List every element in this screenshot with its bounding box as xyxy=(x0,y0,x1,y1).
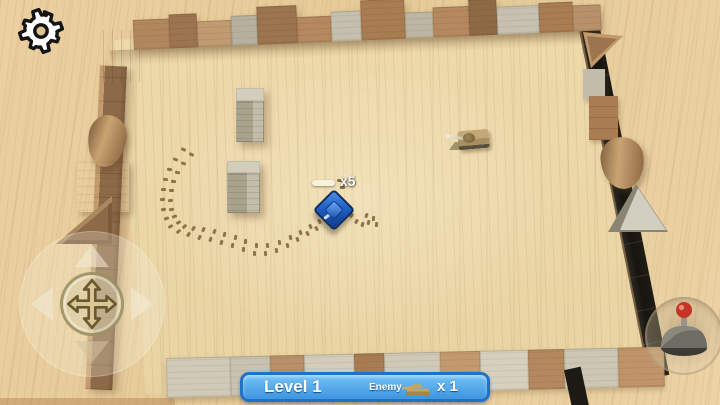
track-mark xyxy=(163,178,168,181)
wall-block xyxy=(405,11,434,38)
wall-block xyxy=(468,0,497,36)
enemy-count: x 1 xyxy=(437,378,458,395)
track-mark xyxy=(167,168,172,172)
gear-icon xyxy=(18,8,64,54)
wall-block xyxy=(133,19,170,50)
track-mark xyxy=(253,251,256,256)
wall-block xyxy=(197,20,232,47)
wall-block xyxy=(256,5,298,45)
wall-block xyxy=(297,16,332,43)
move-cross-icon xyxy=(63,275,121,333)
ramp-right-top xyxy=(583,30,625,70)
wall-block xyxy=(166,357,231,398)
wood-blocks-right-wall xyxy=(589,96,618,140)
track-mark xyxy=(171,180,176,183)
joystick-down-arrow xyxy=(75,341,109,363)
ammo-bar-icon xyxy=(312,180,335,186)
gray-cube-right-wall xyxy=(583,69,605,99)
joystick-right-arrow xyxy=(131,287,153,321)
joystick-up-arrow xyxy=(75,245,109,267)
tank-icon xyxy=(401,379,431,397)
track-mark xyxy=(244,239,247,244)
ammo-indicator: x5 xyxy=(312,172,372,194)
track-mark xyxy=(255,243,258,248)
fire-stick-icon xyxy=(645,297,720,375)
fire-button[interactable] xyxy=(645,297,720,375)
track-mark xyxy=(242,247,245,252)
game-viewport: x5 Level xyxy=(0,0,720,405)
track-mark xyxy=(372,216,375,221)
gray-cube-center-bottom xyxy=(227,161,260,213)
wall-block xyxy=(331,10,362,41)
wall-block xyxy=(432,6,469,37)
track-mark xyxy=(175,171,180,175)
wall-block xyxy=(231,15,258,46)
track-mark xyxy=(266,243,269,248)
cube-top-face xyxy=(227,161,260,173)
wall-block xyxy=(538,2,573,33)
move-joystick[interactable] xyxy=(19,231,165,377)
track-mark xyxy=(161,188,166,191)
joystick-left-arrow xyxy=(31,287,53,321)
joystick-hub[interactable] xyxy=(60,272,124,336)
gray-cube-center-top xyxy=(236,88,264,142)
cube-front-face xyxy=(236,101,264,142)
cube-front-face xyxy=(227,173,260,213)
ammo-count-label: x5 xyxy=(340,173,356,189)
enemy-tank xyxy=(446,124,490,154)
enemy-label: Enemy xyxy=(369,382,402,393)
enemy-tank-turret xyxy=(463,133,475,143)
wall-block xyxy=(528,349,565,390)
track-mark xyxy=(264,251,267,256)
wall-block xyxy=(573,4,602,31)
cube-top-face xyxy=(236,88,264,101)
level-banner: Level 1 Enemy x 1 xyxy=(240,372,490,402)
level-label: Level 1 xyxy=(264,377,322,397)
track-mark xyxy=(168,199,173,202)
table-edge-line xyxy=(0,398,175,405)
track-mark xyxy=(169,189,174,192)
track-mark xyxy=(160,198,165,201)
wall-block xyxy=(360,0,406,40)
track-mark xyxy=(375,222,378,227)
wall-block xyxy=(169,13,198,48)
settings-button[interactable] xyxy=(18,8,64,54)
ramp-right-bottom xyxy=(608,184,670,234)
wall-block xyxy=(497,5,540,35)
track-mark xyxy=(275,248,279,253)
track-mark xyxy=(278,240,282,245)
